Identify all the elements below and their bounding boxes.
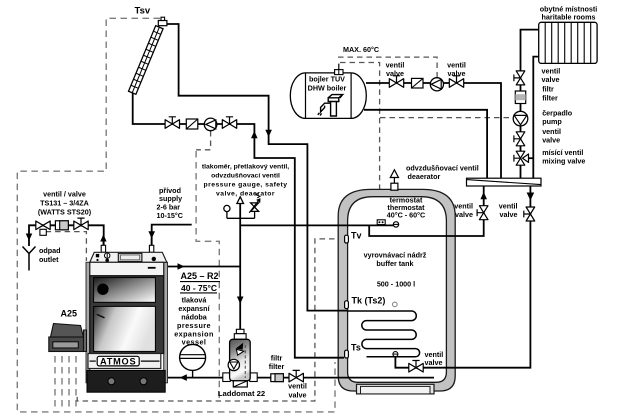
svg-text:buffer tank: buffer tank <box>376 259 413 268</box>
svg-text:mixing valve: mixing valve <box>542 156 585 165</box>
svg-text:40 - 75°C: 40 - 75°C <box>181 283 217 293</box>
svg-text:ventil: ventil <box>288 382 307 391</box>
svg-text:DHW boiler: DHW boiler <box>308 83 347 92</box>
svg-text:filtr: filtr <box>542 85 554 94</box>
svg-text:deaerator: deaerator <box>408 172 441 181</box>
svg-text:vyrovnávací nádrž: vyrovnávací nádrž <box>364 250 427 259</box>
svg-text:valve: valve <box>425 358 443 367</box>
svg-text:Tk (Ts2): Tk (Ts2) <box>352 296 386 306</box>
svg-text:odvzdušňovací ventil: odvzdušňovací ventil <box>211 172 280 179</box>
svg-text:valve: valve <box>289 390 307 399</box>
svg-text:valve, deaerator: valve, deaerator <box>216 190 275 197</box>
svg-text:valve: valve <box>542 75 560 84</box>
svg-text:pump: pump <box>542 117 562 126</box>
svg-text:filter: filter <box>269 362 285 371</box>
svg-text:odpad: odpad <box>39 246 61 255</box>
svg-text:outlet: outlet <box>39 255 59 264</box>
svg-text:(WATTS STS20): (WATTS STS20) <box>38 208 92 217</box>
svg-text:Laddomat 22: Laddomat 22 <box>218 389 265 398</box>
svg-text:Tsv: Tsv <box>135 6 151 17</box>
svg-text:A25 – R2: A25 – R2 <box>181 271 219 281</box>
svg-text:40°C - 60°C: 40°C - 60°C <box>387 211 426 220</box>
svg-text:MAX. 60°C: MAX. 60°C <box>343 45 379 54</box>
svg-text:valve: valve <box>500 210 518 219</box>
svg-text:A25: A25 <box>61 309 78 319</box>
svg-text:ventil / valve: ventil / valve <box>43 190 86 199</box>
svg-text:bojler TUV: bojler TUV <box>309 75 345 84</box>
svg-text:10-15°C: 10-15°C <box>157 211 183 220</box>
svg-text:valve: valve <box>542 136 560 145</box>
svg-text:ATMOS: ATMOS <box>100 356 137 366</box>
svg-text:tlakoměr, přetlakový ventil,: tlakoměr, přetlakový ventil, <box>202 163 289 170</box>
svg-text:Tv: Tv <box>351 231 362 241</box>
svg-text:500 - 1000 l: 500 - 1000 l <box>377 279 415 288</box>
svg-text:valve: valve <box>386 69 404 78</box>
svg-text:TS131 – 3/4ZA: TS131 – 3/4ZA <box>40 199 89 208</box>
svg-text:Ts: Ts <box>351 342 361 352</box>
svg-text:valve: valve <box>455 210 473 219</box>
svg-text:valve: valve <box>448 69 466 78</box>
svg-text:haritable rooms: haritable rooms <box>542 13 596 22</box>
svg-text:pressure gauge, safety: pressure gauge, safety <box>204 181 288 188</box>
svg-text:vessel: vessel <box>182 337 207 346</box>
svg-text:filter: filter <box>542 93 558 102</box>
